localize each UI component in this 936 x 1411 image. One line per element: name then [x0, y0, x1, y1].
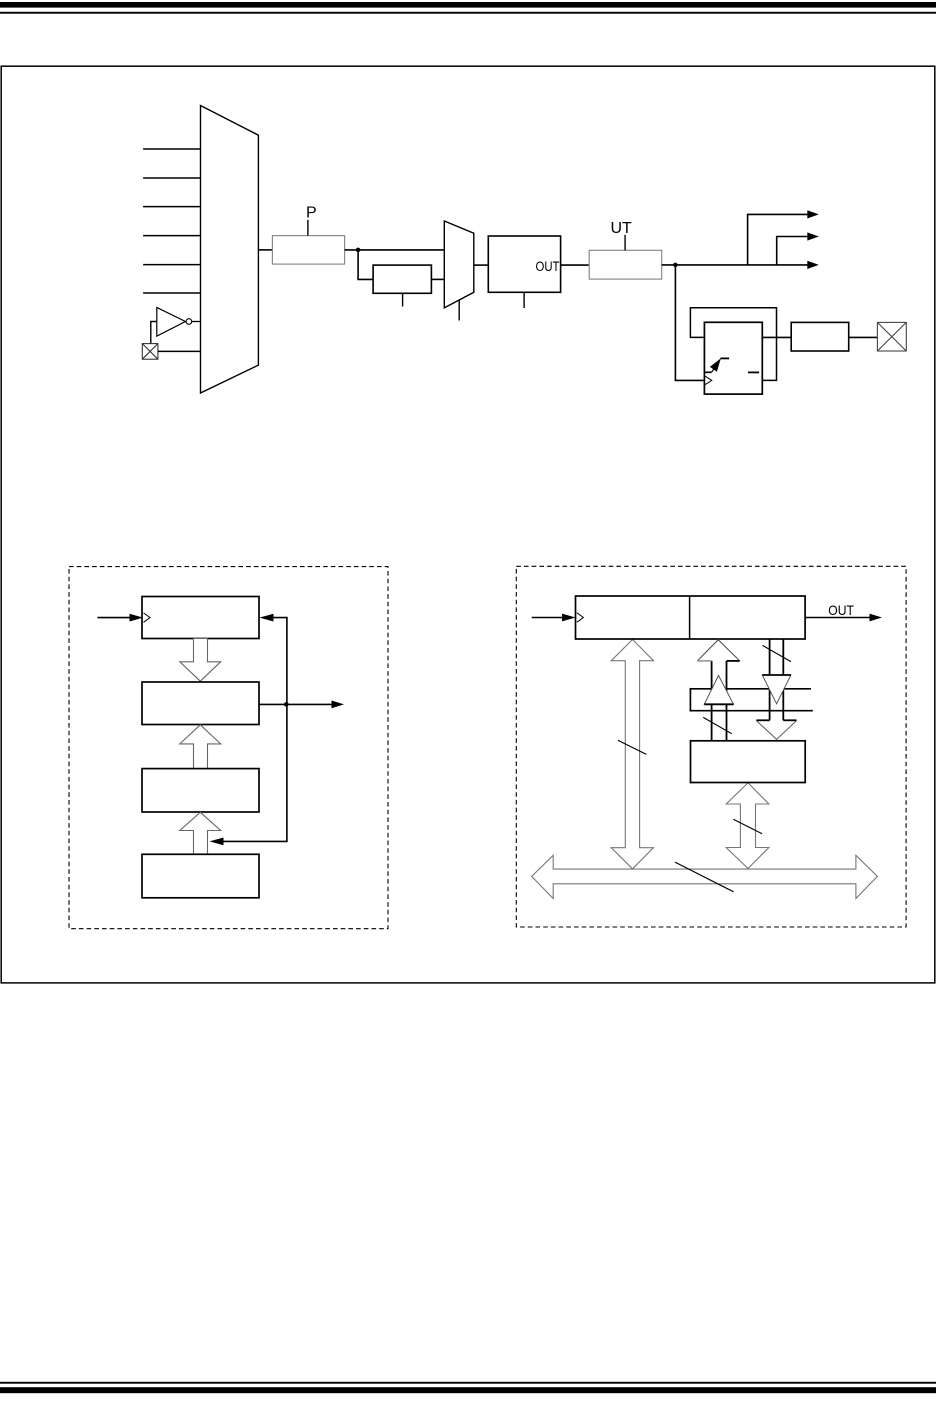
- svg-text:OUT: OUT: [828, 602, 854, 618]
- svg-text:OUT: OUT: [536, 258, 560, 274]
- svg-text:UT: UT: [611, 220, 633, 237]
- svg-text:P: P: [306, 205, 317, 222]
